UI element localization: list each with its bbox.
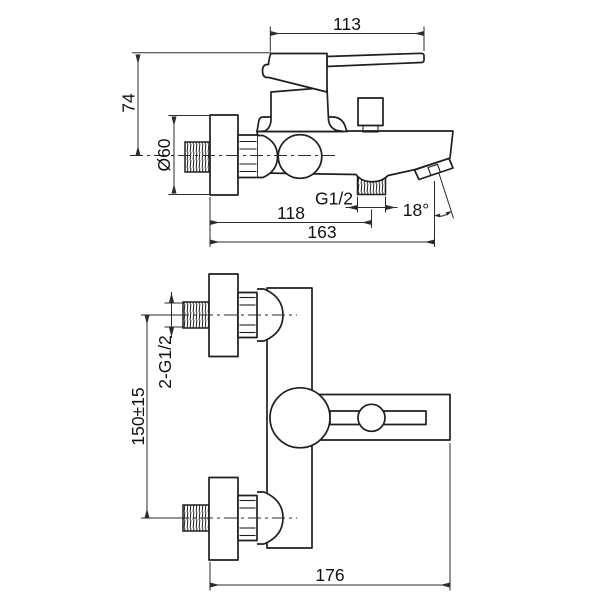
dim-height-top-label: 74 [119, 93, 139, 113]
dim-handle-length: 113 [270, 14, 424, 52]
bottom-wall-flange [209, 478, 238, 561]
dim-inlet-thread: 2-G1/2 [155, 292, 184, 389]
side-view: 113 74 Ø60 G1/2 118 [119, 14, 454, 247]
dim-total-depth-label: 163 [307, 222, 336, 242]
inlet-thread-side [185, 142, 210, 172]
wall-flange-side [210, 115, 238, 195]
handle-lever [327, 53, 424, 66]
dim-total-depth: 163 [210, 222, 435, 242]
handle-cap [263, 54, 328, 93]
handle-hub-front [358, 404, 385, 431]
dim-outlet-offset-label: 118 [277, 203, 305, 223]
cartridge-circle-side [278, 135, 322, 179]
dim-flange-diameter-label: Ø60 [154, 138, 174, 171]
dim-inlet-thread-label: 2-G1/2 [155, 335, 175, 389]
technical-drawing: 113 74 Ø60 G1/2 118 [0, 0, 600, 600]
cartridge-circle-front [270, 388, 330, 448]
dim-inlet-spacing-label: 150±15 [128, 387, 148, 445]
drawing-page: 113 74 Ø60 G1/2 118 [0, 0, 600, 600]
dim-spout-angle-label: 18° [403, 200, 429, 220]
dim-spout-angle: 18° [403, 174, 454, 248]
front-view: 2-G1/2 150±15 176 [128, 274, 450, 591]
dim-outlet-thread-label: G1/2 [315, 189, 353, 209]
diverter-knob [358, 98, 383, 126]
dim-handle-length-label: 113 [333, 14, 361, 34]
dim-total-width-label: 176 [315, 565, 344, 585]
